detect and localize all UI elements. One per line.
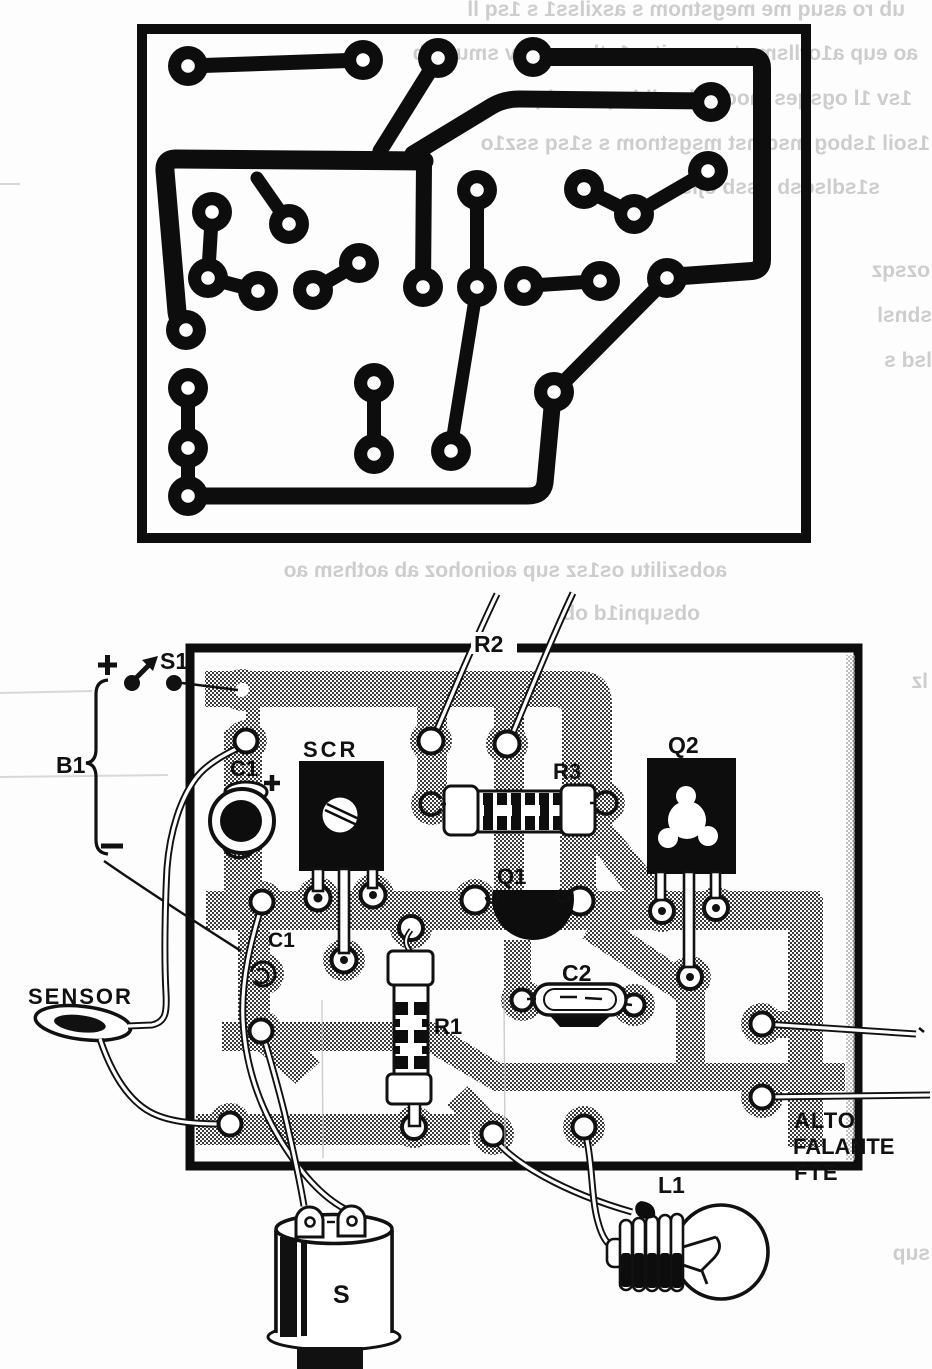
- svg-text:lsd s: lsd s: [884, 349, 932, 372]
- svg-text:obsupni1d ob: obsupni1d ob: [562, 602, 700, 625]
- svg-text:Q2: Q2: [668, 732, 699, 758]
- svg-text:SCR: SCR: [303, 737, 358, 762]
- svg-text:ub ro asuq me megstnom s asxi: ub ro asuq me megstnom s asxilss1 s 1sq …: [467, 0, 905, 21]
- svg-text:R2: R2: [474, 631, 503, 657]
- svg-text:C1: C1: [230, 756, 258, 781]
- svg-text:B1: B1: [56, 752, 86, 778]
- svg-text:FTE: FTE: [794, 1160, 839, 1185]
- svg-text:aobszilitu os1sz sup aoinohoz: aobszilitu os1sz sup aoinohoz ab aothsm …: [284, 559, 727, 582]
- svg-text:L1: L1: [658, 1172, 685, 1198]
- svg-text:S1: S1: [160, 648, 188, 674]
- svg-text:sup: sup: [893, 1242, 930, 1265]
- svg-text:S: S: [333, 1281, 350, 1309]
- svg-text:R3: R3: [553, 759, 581, 784]
- svg-text:ALTO: ALTO: [794, 1108, 856, 1133]
- svg-text:FALANTE: FALANTE: [793, 1134, 894, 1159]
- svg-text:C2: C2: [562, 960, 591, 986]
- svg-text:C1: C1: [268, 929, 295, 952]
- svg-text:Q1: Q1: [497, 864, 526, 889]
- svg-text:sbnsl: sbnsl: [877, 304, 932, 327]
- svg-text:ozsqz: ozsqz: [872, 259, 930, 282]
- svg-text:lz: lz: [912, 670, 928, 693]
- svg-text:R1: R1: [434, 1014, 462, 1039]
